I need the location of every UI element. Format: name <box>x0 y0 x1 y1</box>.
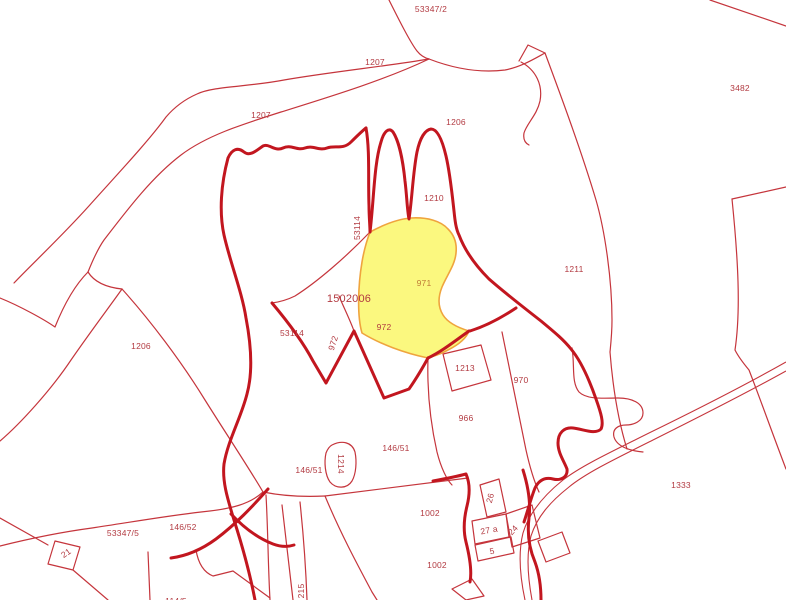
parcel-label-1213: 1213 <box>455 363 475 373</box>
parcel-label-146-51-right: 146/51 <box>382 443 409 453</box>
boundary-line <box>221 128 366 600</box>
parcel-label-53347-2: 53347/2 <box>415 4 447 14</box>
parcel-label-53114: 53114 <box>280 328 304 338</box>
parcel-boundary-line <box>325 496 377 600</box>
parcel-label-215: 215 <box>296 584 306 599</box>
map-canvas[interactable]: 53347/2 1207 1207 1206 3482 1210 53114 1… <box>0 0 786 600</box>
parcel-boundary-line <box>572 348 643 452</box>
parcel-label-1002-lower: 1002 <box>427 560 447 570</box>
parcel-label-972-rotated: 972 <box>326 334 340 351</box>
parcel-boundary-line <box>88 272 122 289</box>
parcel-label-21: 21 <box>59 546 73 560</box>
parcel-boundary-line <box>148 550 270 600</box>
parcel-label-146-51-left: 146/51 <box>295 465 322 475</box>
parcel-label-1207: 1207 <box>251 110 271 120</box>
parcel-label-1502006: 1502006 <box>327 293 371 305</box>
parcel-label-1210: 1210 <box>424 193 444 203</box>
parcel-label-1333: 1333 <box>671 480 691 490</box>
parcel-label-1211: 1211 <box>564 264 583 274</box>
parcel-boundary-line <box>732 187 786 199</box>
parcel-label-1206-top: 1206 <box>446 117 466 127</box>
parcel-boundary-line <box>610 352 627 449</box>
parcel-boundary-line <box>710 0 786 26</box>
parcel-label-972: 972 <box>377 322 392 332</box>
road-edge <box>528 371 786 600</box>
parcel-boundary-line <box>266 495 270 600</box>
parcel-label-1002-upper: 1002 <box>420 508 440 518</box>
parcel-boundary-line <box>122 289 263 492</box>
parcel-label-971-highlighted: 971 <box>417 278 432 288</box>
parcel-boundary-line <box>502 332 539 492</box>
parcel-label-1206-left: 1206 <box>131 341 151 351</box>
parcel-label-53114-vertical: 53114 <box>352 216 362 240</box>
parcel-label-146-52: 146/52 <box>169 522 196 532</box>
boundary-line <box>470 308 516 331</box>
highlighted-parcel-971[interactable] <box>359 218 469 358</box>
road-edge <box>520 362 786 600</box>
parcel-boundary-line <box>521 62 541 145</box>
parcel-label-53347-5: 53347/5 <box>107 528 139 538</box>
boundary-line <box>366 128 370 232</box>
parcel-boundary-line <box>0 272 88 327</box>
parcel-5-outline <box>475 537 514 561</box>
parcel-label-clipped-bottom: 114/5 <box>165 596 187 600</box>
parcel-label-1207-top: 1207 <box>365 57 385 67</box>
parcel-label-5: 5 <box>489 546 496 557</box>
parcel-label-3482: 3482 <box>730 83 750 93</box>
parcel-label-27a: 27 a <box>480 524 499 537</box>
small-parcel-outline <box>538 532 570 562</box>
parcel-boundary-line <box>325 478 468 496</box>
parcel-label-1214-vertical: 1214 <box>336 454 346 474</box>
parcel-boundary-line <box>732 199 786 469</box>
parcel-label-970: 970 <box>514 375 529 385</box>
parcel-boundary-line <box>545 53 612 352</box>
parcel-21-outline <box>0 518 108 600</box>
parcel-label-26: 26 <box>484 492 496 504</box>
parcel-label-966: 966 <box>459 413 474 423</box>
small-parcel-outline <box>452 579 484 600</box>
parcel-boundary-line <box>263 492 325 496</box>
road-lines <box>520 362 786 600</box>
